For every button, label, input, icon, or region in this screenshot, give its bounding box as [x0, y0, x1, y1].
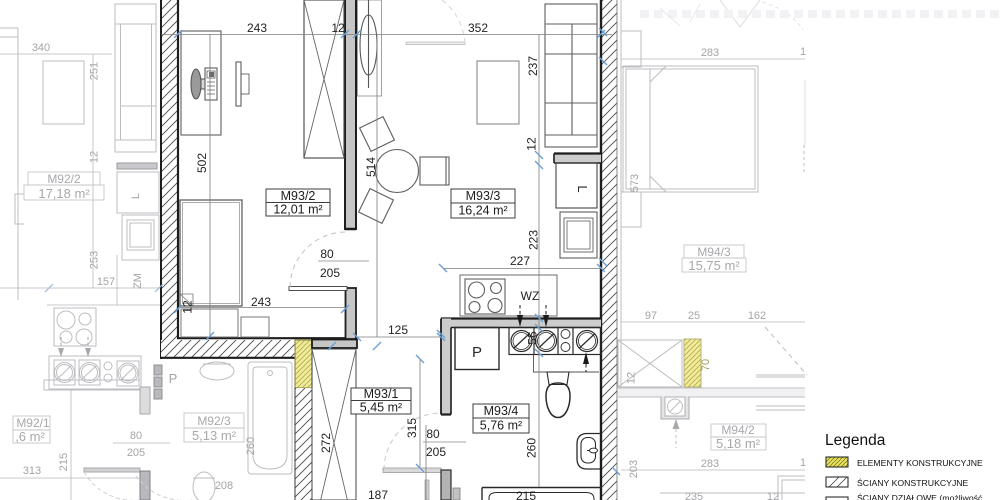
- svg-text:M93/1: M93/1: [364, 387, 399, 401]
- svg-text:M94/3: M94/3: [697, 245, 731, 259]
- svg-text:25: 25: [688, 310, 700, 322]
- svg-text:352: 352: [468, 21, 488, 35]
- svg-text:16,24 m²: 16,24 m²: [458, 204, 507, 218]
- svg-text:Legenda: Legenda: [825, 432, 886, 449]
- svg-text:56: 56: [526, 331, 540, 345]
- svg-text:283: 283: [701, 47, 719, 59]
- svg-text:573: 573: [629, 174, 641, 192]
- svg-text:215: 215: [516, 489, 536, 500]
- svg-text:12: 12: [626, 372, 638, 384]
- svg-text:203: 203: [628, 460, 640, 478]
- svg-text:12: 12: [525, 137, 539, 151]
- svg-text:253: 253: [89, 251, 101, 269]
- svg-text:80: 80: [426, 427, 440, 441]
- svg-text:M94/2: M94/2: [721, 423, 755, 437]
- svg-text:208: 208: [215, 480, 233, 492]
- svg-text:205: 205: [320, 266, 340, 280]
- svg-text:70: 70: [700, 359, 712, 371]
- svg-text:M92/2: M92/2: [47, 172, 81, 186]
- svg-text:WZ: WZ: [521, 289, 540, 303]
- svg-text:157: 157: [97, 276, 115, 288]
- svg-text:12: 12: [181, 300, 195, 314]
- svg-text:,6 m²: ,6 m²: [15, 429, 45, 444]
- svg-text:80: 80: [320, 247, 334, 261]
- svg-text:162: 162: [748, 310, 766, 322]
- svg-text:M93/2: M93/2: [281, 189, 316, 203]
- svg-text:502: 502: [195, 153, 209, 173]
- svg-text:15,75 m²: 15,75 m²: [688, 258, 740, 273]
- svg-text:125: 125: [388, 323, 408, 337]
- svg-text:215: 215: [58, 453, 70, 471]
- svg-text:1: 1: [800, 457, 806, 469]
- svg-text:80: 80: [130, 430, 142, 442]
- svg-text:272: 272: [319, 433, 333, 453]
- svg-text:5,45 m²: 5,45 m²: [360, 401, 402, 415]
- svg-text:315: 315: [405, 418, 419, 438]
- svg-text:223: 223: [527, 230, 541, 250]
- svg-text:ŚCIANY KONSTRUKCYJNE: ŚCIANY KONSTRUKCYJNE: [857, 477, 969, 488]
- svg-text:M93/4: M93/4: [484, 404, 519, 418]
- svg-text:12,01 m²: 12,01 m²: [273, 203, 322, 217]
- svg-text:313: 313: [23, 465, 41, 477]
- svg-text:243: 243: [247, 21, 267, 35]
- svg-text:L: L: [130, 193, 142, 199]
- svg-text:187: 187: [368, 488, 388, 500]
- svg-text:5,76 m²: 5,76 m²: [480, 419, 522, 433]
- svg-text:97: 97: [645, 310, 657, 322]
- svg-text:205: 205: [127, 447, 145, 459]
- svg-text:P: P: [169, 371, 178, 386]
- svg-text:12: 12: [89, 151, 101, 163]
- svg-text:260: 260: [245, 437, 257, 455]
- svg-text:P: P: [472, 344, 482, 361]
- svg-text:260: 260: [525, 438, 539, 458]
- svg-text:L: L: [575, 185, 590, 192]
- svg-text:ZM: ZM: [132, 273, 144, 289]
- svg-text:5,18 m²: 5,18 m²: [716, 436, 761, 451]
- svg-text:12: 12: [331, 21, 345, 35]
- svg-text:340: 340: [32, 42, 50, 54]
- svg-text:227: 227: [510, 254, 530, 268]
- svg-text:283: 283: [701, 458, 719, 470]
- svg-text:M93/3: M93/3: [466, 189, 501, 203]
- svg-text:205: 205: [426, 445, 446, 459]
- svg-text:1: 1: [800, 46, 806, 58]
- svg-text:251: 251: [89, 62, 101, 80]
- svg-text:243: 243: [251, 295, 271, 309]
- svg-text:5,13 m²: 5,13 m²: [192, 428, 237, 443]
- svg-text:17,18 m²: 17,18 m²: [38, 186, 90, 201]
- svg-text:235: 235: [685, 491, 703, 500]
- svg-text:12: 12: [767, 491, 779, 500]
- svg-text:237: 237: [526, 56, 540, 76]
- svg-text:ŚCIANY DZIAŁOWE (możliwość: ŚCIANY DZIAŁOWE (możliwość: [857, 492, 983, 500]
- svg-text:ELEMENTY KONSTRUKCYJNE: ELEMENTY KONSTRUKCYJNE: [857, 458, 983, 468]
- svg-text:M92/1: M92/1: [16, 416, 50, 430]
- svg-text:514: 514: [364, 157, 378, 177]
- svg-text:M92/3: M92/3: [197, 414, 231, 428]
